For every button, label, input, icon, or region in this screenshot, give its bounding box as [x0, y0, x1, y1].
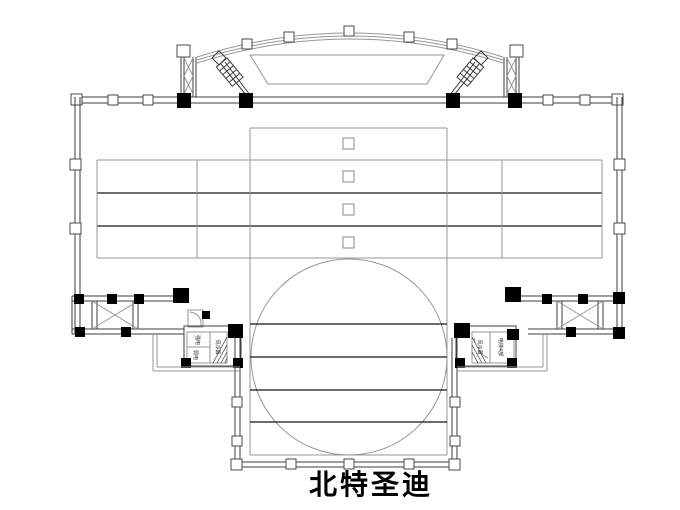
room-label: 强电 — [194, 335, 201, 345]
column — [566, 327, 576, 337]
column — [507, 329, 519, 340]
room-label: 弱电 — [192, 350, 199, 360]
canopy-panel — [250, 55, 444, 84]
right-wing — [505, 287, 625, 339]
right-stair-core: 风冷幕 电梯4部 — [454, 323, 547, 371]
column — [239, 93, 253, 108]
room-label: 风冷幕 — [476, 339, 483, 354]
column — [613, 327, 625, 339]
canopy-left-detail — [177, 45, 250, 97]
canopy-ladder-brace — [216, 58, 243, 86]
column — [446, 93, 460, 108]
door-swing-arc — [190, 312, 201, 326]
room-label: 风冷幕 — [214, 339, 221, 354]
column — [542, 294, 552, 304]
column — [228, 324, 243, 338]
column — [613, 292, 625, 304]
bottom-bay-walls — [231, 338, 460, 470]
column — [578, 294, 588, 304]
plan-title: 北特圣迪 — [309, 468, 433, 501]
rotunda — [250, 259, 447, 455]
canopy-right-detail — [450, 45, 523, 97]
floor-plan-drawing: 强电 弱电 风冷幕 风冷幕 电梯4部 — [0, 0, 680, 510]
column — [454, 323, 470, 338]
canopy — [177, 26, 523, 97]
central-corridor — [250, 128, 447, 455]
column — [177, 93, 191, 108]
left-stair-core: 强电 弱电 风冷幕 — [153, 324, 243, 371]
column — [107, 294, 117, 304]
column — [74, 294, 84, 304]
room-label: 电梯4部 — [497, 338, 504, 356]
left-wing — [72, 288, 210, 337]
column — [75, 327, 85, 337]
column — [202, 311, 210, 319]
column — [173, 288, 189, 303]
column — [121, 327, 131, 337]
column — [508, 93, 522, 108]
column — [505, 287, 521, 302]
column — [134, 294, 144, 304]
top-wall — [71, 93, 623, 108]
